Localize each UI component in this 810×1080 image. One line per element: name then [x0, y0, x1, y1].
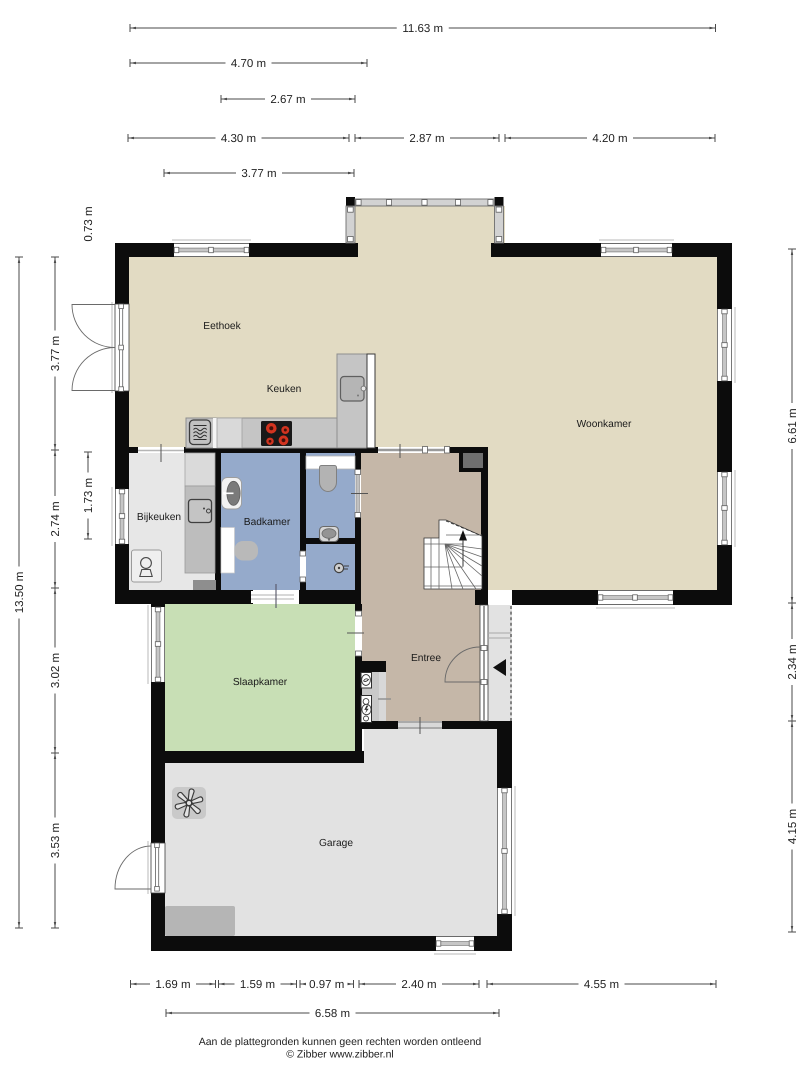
svg-text:3.53 m: 3.53 m: [50, 823, 62, 858]
svg-text:0.97 m: 0.97 m: [309, 979, 344, 991]
svg-text:Garage: Garage: [319, 838, 353, 849]
svg-text:4.20 m: 4.20 m: [592, 133, 627, 145]
svg-text:Aan de plattegronden kunnen ge: Aan de plattegronden kunnen geen rechten…: [199, 1036, 482, 1048]
svg-text:Badkamer: Badkamer: [244, 517, 291, 528]
svg-text:Bijkeuken: Bijkeuken: [137, 512, 181, 523]
svg-text:1.73 m: 1.73 m: [83, 478, 95, 513]
svg-text:4.70 m: 4.70 m: [231, 58, 266, 70]
svg-text:2.34 m: 2.34 m: [787, 644, 799, 679]
svg-text:Woonkamer: Woonkamer: [577, 419, 632, 430]
svg-text:2.67 m: 2.67 m: [270, 94, 305, 106]
svg-text:© Zibber www.zibber.nl: © Zibber www.zibber.nl: [286, 1049, 394, 1061]
svg-text:0.73 m: 0.73 m: [83, 206, 95, 241]
svg-text:4.15 m: 4.15 m: [787, 809, 799, 844]
svg-text:1.69 m: 1.69 m: [155, 979, 190, 991]
svg-text:2.74 m: 2.74 m: [50, 501, 62, 536]
svg-text:6.61 m: 6.61 m: [787, 408, 799, 443]
svg-text:2.87 m: 2.87 m: [409, 133, 444, 145]
svg-text:Keuken: Keuken: [267, 384, 302, 395]
svg-text:1.59 m: 1.59 m: [240, 979, 275, 991]
svg-text:11.63 m: 11.63 m: [402, 23, 443, 35]
svg-text:4.55 m: 4.55 m: [584, 979, 619, 991]
svg-text:4.30 m: 4.30 m: [221, 133, 256, 145]
svg-text:3.77 m: 3.77 m: [50, 336, 62, 371]
svg-text:Entree: Entree: [411, 653, 441, 664]
svg-text:Eethoek: Eethoek: [203, 321, 241, 332]
svg-text:Slaapkamer: Slaapkamer: [233, 677, 288, 688]
svg-text:13.50 m: 13.50 m: [14, 572, 26, 614]
svg-text:6.58 m: 6.58 m: [315, 1008, 350, 1020]
svg-text:2.40 m: 2.40 m: [401, 979, 436, 991]
svg-text:3.02 m: 3.02 m: [50, 653, 62, 688]
svg-text:3.77 m: 3.77 m: [241, 168, 276, 180]
